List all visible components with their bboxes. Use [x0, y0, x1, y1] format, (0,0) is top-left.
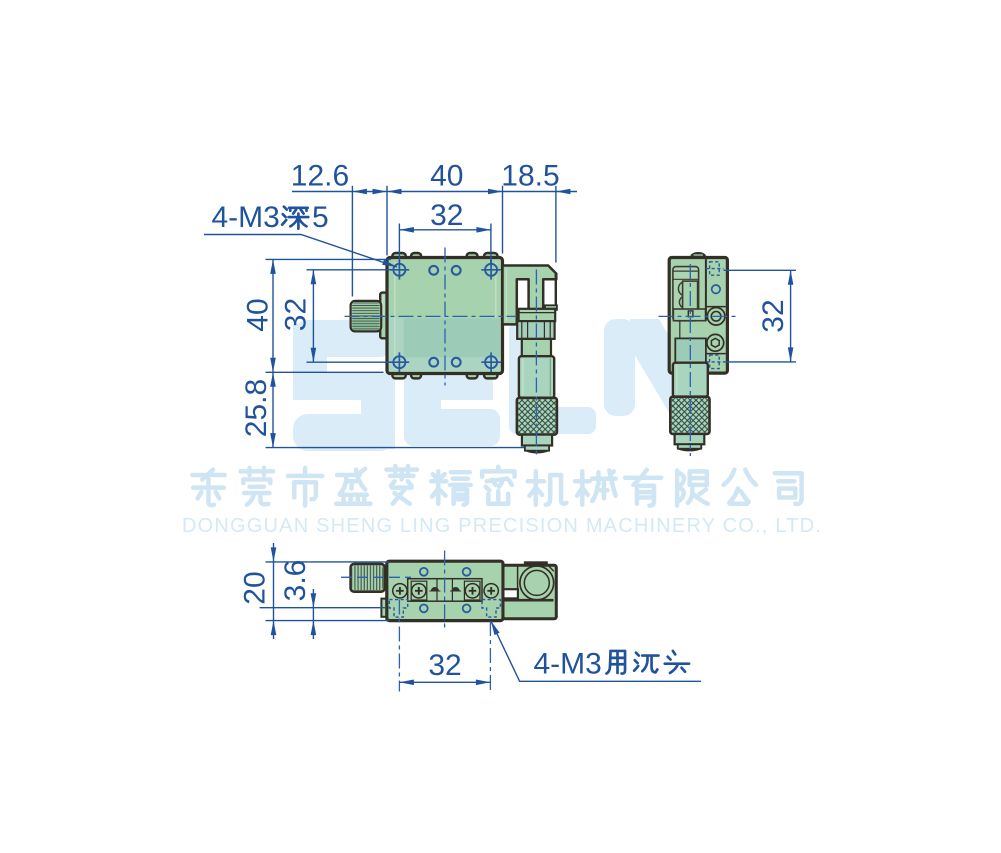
svg-text:25.8: 25.8: [240, 379, 273, 437]
svg-text:40: 40: [242, 298, 275, 331]
svg-text:32: 32: [430, 199, 463, 232]
svg-text:3.6: 3.6: [279, 560, 312, 602]
svg-text:DONGGUAN SHENG LING PRECISION: DONGGUAN SHENG LING PRECISION MACHINERY …: [182, 515, 822, 537]
svg-text:5: 5: [312, 201, 329, 234]
svg-text:12.6: 12.6: [291, 160, 349, 193]
svg-text:40: 40: [430, 160, 463, 193]
svg-text:32: 32: [428, 649, 461, 682]
svg-text:32: 32: [757, 299, 790, 332]
svg-text:4-M3: 4-M3: [534, 648, 602, 681]
svg-text:32: 32: [280, 298, 313, 331]
svg-text:18.5: 18.5: [501, 160, 559, 193]
svg-text:20: 20: [239, 571, 272, 604]
svg-text:4-M3: 4-M3: [212, 201, 280, 234]
